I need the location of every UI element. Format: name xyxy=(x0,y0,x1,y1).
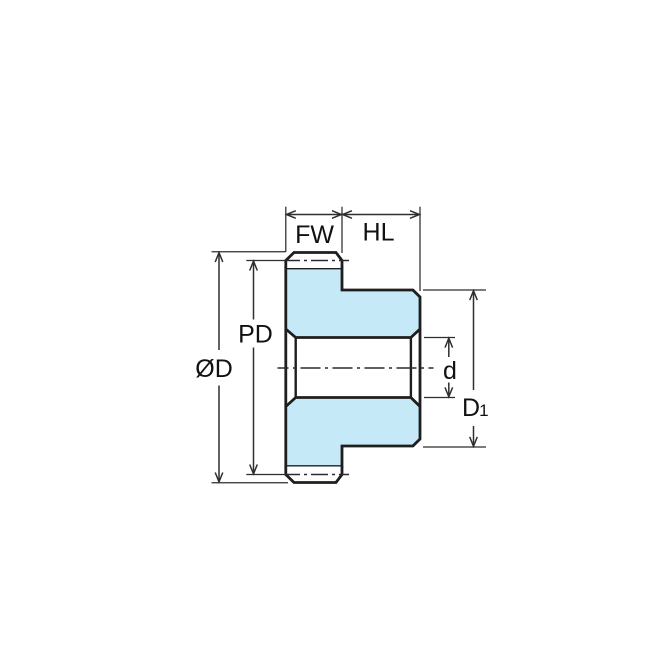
svg-text:HL: HL xyxy=(363,219,395,247)
svg-text:ØD: ØD xyxy=(195,355,233,383)
svg-text:PD: PD xyxy=(238,321,273,349)
svg-text:FW: FW xyxy=(295,221,334,249)
svg-text:d: d xyxy=(443,357,457,385)
